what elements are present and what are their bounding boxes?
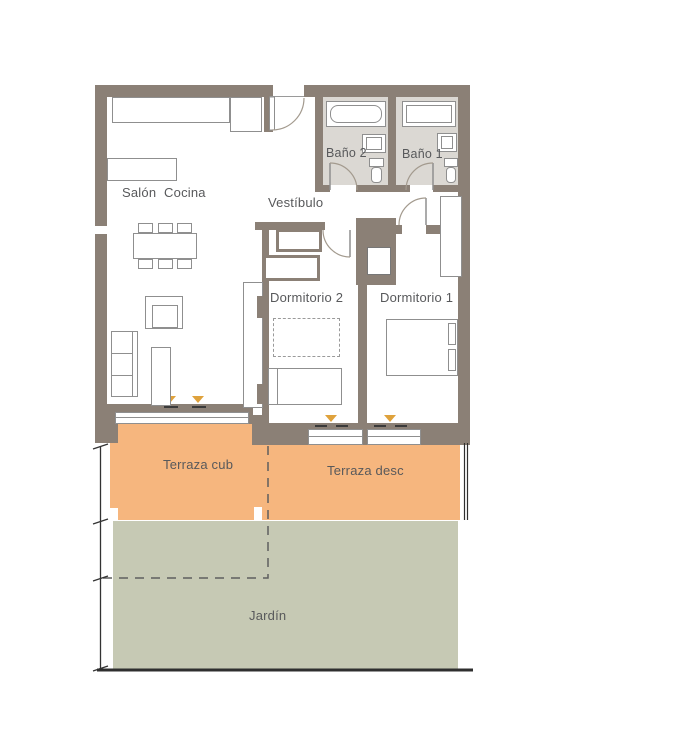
wall-dormitorio1-top-a	[396, 225, 402, 234]
window-marker-icon	[192, 396, 204, 403]
exterior-wall-left-upper	[95, 85, 107, 226]
terraza-cub-area	[110, 424, 253, 520]
dormitorio1-label: Dormitorio 1	[380, 290, 453, 305]
dormitorio2-closet	[263, 255, 320, 281]
dormitorio1-wardrobe	[440, 196, 462, 277]
terraza-desc-area	[253, 445, 460, 520]
dormitorio2-window-line	[309, 436, 362, 437]
bano1-toilet	[446, 167, 456, 183]
wall-divider-bedrooms	[358, 285, 367, 423]
sofa	[111, 331, 138, 397]
dormitorio2-closet	[276, 229, 322, 252]
wall-bano2-bottom-b	[356, 185, 396, 192]
dining-table	[133, 233, 197, 259]
bano2-bathtub-basin	[330, 105, 382, 123]
bano1-label: Baño 1	[402, 147, 443, 161]
pergola-post	[254, 507, 262, 521]
armchair-seat	[152, 305, 178, 328]
salon-window-line	[116, 417, 248, 418]
dormitorio1-sliding-window	[367, 429, 421, 445]
terraza-cub-label: Terraza cub	[163, 457, 233, 472]
wall-bano2-left	[315, 97, 323, 192]
sofa-front-line	[132, 332, 133, 396]
dormitorio1-pillow	[448, 323, 456, 345]
wall-bano-middle	[388, 97, 396, 192]
terraza-desc-label: Terraza desc	[327, 463, 404, 478]
exterior-wall-top-right	[304, 85, 470, 97]
dimension-tick	[93, 444, 108, 449]
dormitorio1-window-line	[368, 436, 420, 437]
side-table	[151, 347, 171, 406]
wall-bano1-bottom-a	[396, 185, 410, 192]
bano2-toilet	[371, 167, 382, 183]
vestibulo-label: Vestíbulo	[268, 195, 323, 210]
slide-arrow	[395, 425, 407, 427]
window-marker-icon	[325, 415, 337, 422]
bano2-toilet-cistern	[369, 158, 384, 167]
slide-arrow	[374, 425, 386, 427]
cabinet-pier	[257, 296, 263, 318]
wall-bano1-bottom-b	[433, 185, 470, 192]
dormitorio2-bed	[268, 368, 342, 405]
dining-chair	[158, 259, 173, 269]
dimension-tick	[93, 576, 108, 581]
bano1-toilet-cistern	[444, 158, 458, 167]
dimension-tick	[93, 666, 108, 671]
bano2-label: Baño 2	[326, 146, 367, 160]
slide-arrow	[336, 425, 348, 427]
jardin-area	[113, 521, 458, 670]
pergola-post	[110, 508, 118, 521]
jardin-label: Jardín	[249, 608, 286, 623]
window-marker-icon	[384, 415, 396, 422]
slide-arrow	[192, 406, 206, 408]
bano2-sink-basin	[366, 137, 382, 150]
sofa-cushion-line	[112, 375, 132, 376]
wall-terrace-stub	[252, 415, 263, 445]
dormitorio2-bed-line	[277, 369, 278, 404]
wall-salon-window-side-left	[107, 412, 115, 424]
exterior-wall-left-lower	[95, 234, 107, 405]
floor-plan: Salón Cocina Vestíbulo Baño 2 Baño 1 Dor…	[0, 0, 691, 756]
slide-arrow	[315, 425, 327, 427]
dining-chair	[138, 223, 153, 233]
entrance-door-arc	[272, 98, 304, 130]
dormitorio1-door-arc	[399, 198, 426, 225]
sofa-cushion-line	[112, 353, 132, 354]
dormitorio2-bed-dashed	[273, 318, 340, 357]
entrance-threshold	[270, 96, 304, 97]
wall-bano2-bottom-a	[315, 185, 330, 192]
dormitorio2-sliding-window	[308, 429, 363, 445]
entry-wall-stub	[264, 85, 273, 132]
dining-chair	[177, 259, 192, 269]
kitchen-island	[107, 158, 177, 181]
bano1-shower-tray	[406, 105, 452, 123]
salon-sliding-window	[115, 412, 249, 424]
kitchen-counter	[112, 97, 230, 123]
dormitorio2-label: Dormitorio 2	[270, 290, 343, 305]
dining-chair	[138, 259, 153, 269]
dormitorio1-pillow	[448, 349, 456, 371]
wall-dormitorio1-top-b	[426, 225, 440, 234]
dimension-tick	[93, 519, 108, 524]
dining-chair	[177, 223, 192, 233]
salon-label: Salón Cocina	[122, 185, 206, 200]
shaft-niche	[367, 247, 391, 275]
kitchen-tall-unit	[230, 97, 262, 132]
dining-chair	[158, 223, 173, 233]
slide-arrow	[164, 406, 178, 408]
wall-salon-bottom	[107, 404, 253, 412]
dormitorio2-door-arc	[323, 230, 350, 257]
cabinet-pier	[257, 384, 263, 404]
exterior-wall-top-left	[95, 85, 270, 97]
